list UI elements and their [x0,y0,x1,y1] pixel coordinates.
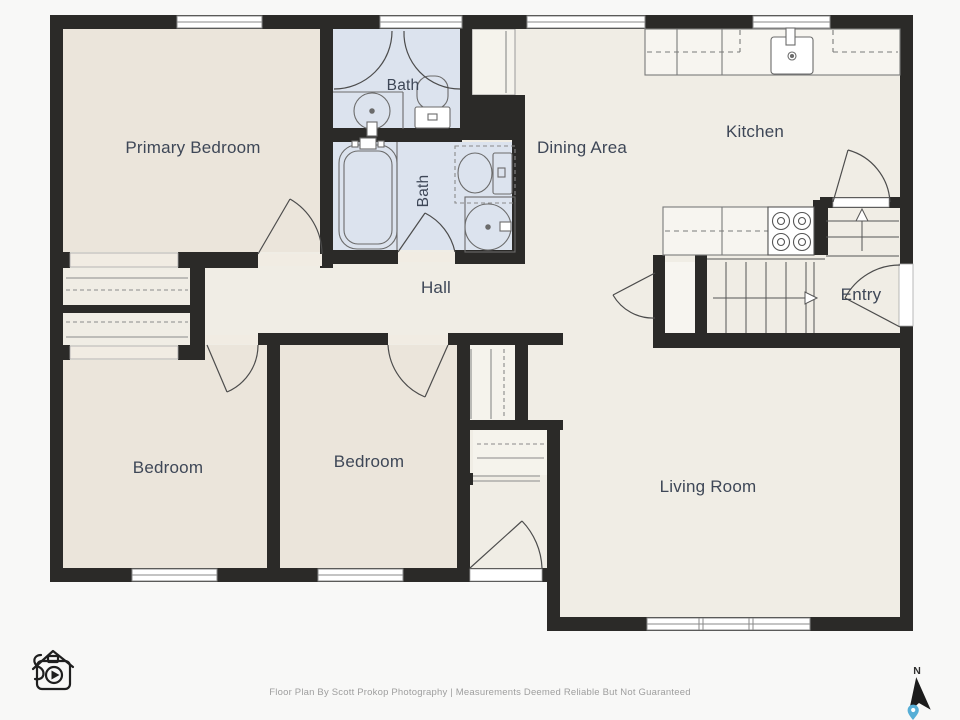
closet-door-track [70,253,178,267]
closet-door-track [70,346,178,359]
hall-closet [470,345,515,420]
window [753,16,830,28]
window [380,16,462,28]
room-label-living-room: Living Room [660,477,757,497]
floor-plan-drawing [0,0,960,720]
room-label-hall: Hall [421,278,451,298]
window [527,16,645,28]
living-room-window [647,618,810,630]
room-label-bath-lower: Bath [415,175,433,208]
window [132,569,217,581]
linen-closet [472,29,515,95]
room-label-entry: Entry [841,285,882,305]
stair-door-leaf [833,198,889,207]
location-pin-icon [908,705,919,720]
room-label-primary-bedroom: Primary Bedroom [125,138,260,158]
entry-door-leaf [899,264,913,326]
room-label-kitchen: Kitchen [726,122,784,142]
floor-plan-canvas: Primary Bedroom Bath Bath Dining Area Ki… [0,0,960,720]
pantry-closet [665,262,695,335]
credit-text: Floor Plan By Scott Prokop Photography |… [0,687,960,698]
side-door-opening [470,569,542,581]
stove-fixture [768,207,814,255]
room-label-bedroom-middle: Bedroom [334,452,404,472]
window [318,569,403,581]
coat-closet [473,430,547,475]
room-label-bedroom-left: Bedroom [133,458,203,478]
play-icon [52,671,60,680]
lower-counter [663,207,768,255]
room-label-dining-area: Dining Area [537,138,627,158]
room-label-bath-upper: Bath [387,77,420,95]
window [177,16,262,28]
